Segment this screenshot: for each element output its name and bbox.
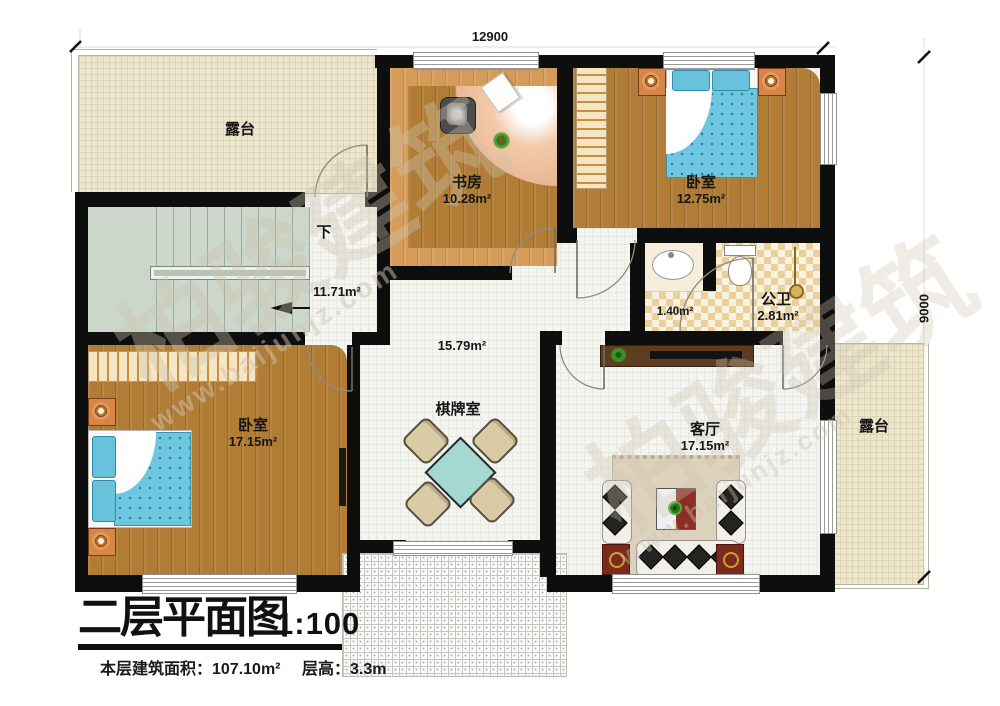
pillow (92, 436, 116, 478)
floor-height-info: 层高：3.3m (302, 655, 386, 679)
dimension-right: 9000 (917, 259, 932, 359)
bathroom-label: 公卫 (726, 291, 826, 308)
floor-area-info: 本层建筑面积：107.10m² (100, 655, 281, 679)
wall-tv-icon (339, 448, 346, 506)
living-room-area: 17.15m² (655, 438, 755, 453)
wall (352, 332, 390, 345)
terrace-top-railing (71, 49, 72, 192)
wall (540, 345, 556, 577)
terrace-right-label: 露台 (824, 418, 924, 435)
wall (365, 192, 377, 207)
window (612, 574, 760, 594)
window (663, 52, 755, 70)
chess-room-label: 棋牌室 (408, 401, 508, 418)
lamp-icon (642, 72, 660, 90)
window (413, 52, 539, 70)
wall (347, 345, 360, 577)
bedroom-left-label: 卧室 (203, 417, 303, 434)
shower-hose (794, 247, 796, 285)
stair-arrow-tail (291, 307, 310, 309)
stair-arrow-icon (270, 302, 292, 314)
bedroom-top-area: 12.75m² (651, 191, 751, 206)
wall (557, 55, 573, 242)
wall (75, 192, 88, 590)
window (820, 420, 837, 534)
wall (703, 243, 716, 291)
bedroom-left-area: 17.15m² (203, 434, 303, 449)
sink-faucet-icon (668, 252, 674, 258)
side-table-ornament-icon (723, 552, 739, 568)
dimension-top: 12900 (440, 29, 540, 44)
wall (75, 192, 305, 207)
wall (377, 266, 512, 280)
page-title: 二层平面图 (78, 595, 288, 641)
plant-icon (611, 348, 626, 362)
pillow (92, 480, 116, 522)
wall (630, 243, 645, 343)
lamp-icon (762, 72, 780, 90)
office-chair-seat (447, 103, 467, 125)
side-table-ornament-icon (609, 552, 625, 568)
terrace-top-label: 露台 (190, 121, 290, 138)
wall (557, 228, 577, 243)
terrace-right-railing (928, 343, 929, 589)
stair-handrail (150, 266, 310, 280)
drawing-scale: 1:100 (276, 606, 360, 642)
title-underline (78, 644, 342, 650)
wardrobe (576, 66, 607, 189)
stairs-direction-label: 下 (310, 224, 338, 241)
bathroom-area: 2.81m² (728, 308, 828, 323)
wall (75, 332, 305, 345)
pillow (712, 70, 750, 91)
stairs-area: 11.71m² (287, 284, 387, 299)
plant-icon (494, 133, 509, 148)
wall (637, 228, 822, 243)
hall-area: 15.79m² (412, 338, 512, 353)
study-label: 书房 (417, 174, 517, 191)
window (820, 93, 837, 165)
wall (377, 55, 390, 345)
living-room-label: 客厅 (655, 421, 755, 438)
toilet-bowl (728, 256, 752, 286)
wardrobe (88, 351, 256, 382)
floor-plan: 柏骏建筑 www.baijunjz.com 柏骏建筑 www.baijunjz.… (0, 0, 1000, 706)
wall (540, 331, 562, 345)
window (393, 541, 513, 556)
terrace-top-railing (71, 49, 377, 50)
bedroom-top-label: 卧室 (651, 174, 751, 191)
pillow (672, 70, 710, 91)
wall (605, 331, 783, 345)
window (142, 574, 297, 594)
study-area: 10.28m² (417, 191, 517, 206)
lamp-icon (92, 532, 110, 550)
plant-icon (668, 501, 682, 515)
lamp-icon (92, 402, 110, 420)
vestibule-area: 1.40m² (625, 306, 725, 318)
terrace-right-floor (833, 343, 924, 585)
toilet-tank (724, 245, 756, 256)
tv-icon (650, 351, 742, 359)
terrace-right-railing (833, 588, 929, 589)
